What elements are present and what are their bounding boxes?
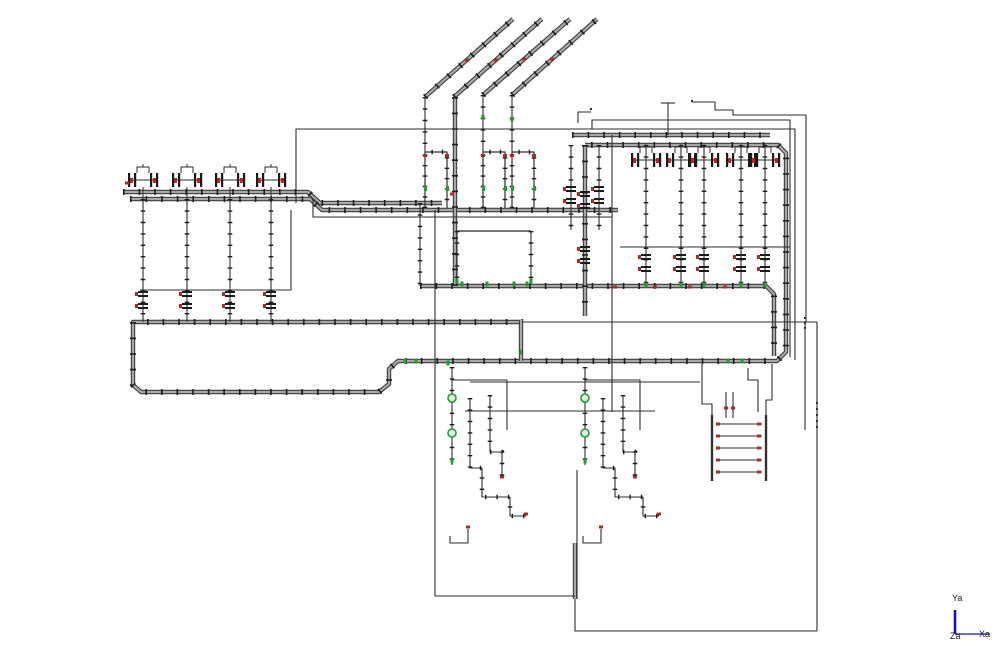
inline-valve-symbol [638,254,651,272]
flange-bar [225,291,235,293]
weld-ticks [490,395,502,478]
red-mark [522,58,526,61]
flange-bar [284,173,286,187]
flange-bar [641,254,651,256]
valve-mark-green [424,186,427,191]
flange-bar [566,198,576,200]
flange-bar [138,291,148,293]
flange-gasket-red [510,154,514,157]
flange-bar [736,270,746,272]
flange-bar [760,258,770,260]
green-mark [526,282,529,287]
flange-bar [748,153,750,167]
flange-bar [594,190,604,192]
green-mark [645,283,648,288]
line-segment [583,529,601,543]
flange-bar [676,258,686,260]
valve-green-circle [448,429,456,437]
red-mark [757,423,761,426]
flange-bar [138,295,148,297]
flange-bar [266,295,276,297]
flange-gasket-red [445,154,449,157]
flange-bar [689,153,691,167]
flange-bar [760,270,770,272]
flange-gasket-red [638,255,641,259]
green-mark [404,359,407,364]
inline-valve-symbol [179,291,192,309]
flange-gasket-red [423,154,427,157]
green-mark [727,359,730,364]
uloop-manifold-symbol [510,152,536,208]
flange-gasket-red [217,178,220,183]
flange-bar [717,153,719,167]
flange-bar [182,307,192,309]
flange-bar [266,303,276,305]
thick-pipes [123,19,786,599]
flange-bar [225,307,235,309]
flange-bar [672,153,674,167]
red-mark [524,513,528,516]
line-segment [450,529,468,543]
red-mark [500,476,504,479]
line-segment [702,364,712,415]
flange-bar [760,266,770,268]
inline-valve-symbol [733,254,746,272]
flange-gasket-red [135,304,138,308]
uloop-symbols [423,152,536,208]
flange-gasket-red [591,187,594,191]
flange-gasket-red [696,267,699,271]
flange-bar [182,303,192,305]
green-mark [520,350,523,355]
flange-bar [631,153,633,167]
flange-bar [736,258,746,260]
flange-gasket-red [281,178,284,183]
red-mark [657,513,661,516]
flange-gasket-red [263,292,266,296]
flange-gasket-red [481,154,485,157]
flange-bar [580,258,590,260]
flange-gasket-red [752,158,755,163]
flange-bar [225,295,235,297]
red-mark [494,59,498,62]
flange-bar [580,246,590,248]
flange-bar [194,173,196,187]
line-segment [296,129,795,360]
flange-bar [699,254,709,256]
uloop-pipe [512,152,534,208]
axis-label-z: Za [950,632,961,641]
uloop-pipe [425,152,447,208]
red-mark [716,435,720,438]
red-mark [653,286,657,289]
flange-gasket-red [691,158,694,163]
inline-valve-symbol [222,291,235,309]
flange-bar [178,173,180,187]
flange-gasket-red [563,199,566,203]
weld-ticks [425,152,447,208]
red-mark [599,526,603,529]
red-mark [716,447,720,450]
inline-valve-symbol [673,254,686,272]
flange-bar [262,173,264,187]
weld-ticks [470,398,526,516]
manifold-loop [137,167,149,173]
flange-bar [278,173,280,187]
line-segment [140,210,291,290]
flange-gasket-red [222,304,225,308]
flange-bar [666,153,668,167]
flange-bar [711,153,713,167]
flange-bar [726,153,728,167]
green-mark [740,283,743,288]
weld-ticks [512,152,534,208]
flange-bar [695,153,697,167]
flange-gasket-red [733,255,736,259]
dot-mark [804,322,806,324]
flange-gasket-red [174,178,177,183]
inline-valve-symbol [757,254,770,272]
line-segment [452,380,507,430]
green-mark [513,282,516,287]
flange-gasket-red [668,158,671,163]
flange-bar [128,173,130,187]
weld-ticks [603,398,659,516]
red-mark [731,407,735,410]
green-mark [530,279,533,284]
flange-bar [138,307,148,309]
axis-label-x: Xa [979,630,990,639]
green-mark [680,283,683,288]
flange-bar [566,202,576,204]
red-mark [757,435,761,438]
red-mark [465,59,469,62]
dot-mark [691,100,693,102]
green-mark [451,459,454,464]
piping-diagram [0,0,1000,653]
flange-bar [580,207,590,209]
flange-bar [659,153,661,167]
green-mark [415,359,418,364]
weld-ticks [483,152,505,208]
flange-bar [221,173,223,187]
flange-bar [750,153,752,167]
flange-bar [138,303,148,305]
inline-valve-symbol [563,186,576,204]
green-mark [456,279,459,284]
flange-bar [594,202,604,204]
flange-gasket-red [673,267,676,271]
flange-gasket-red [577,192,580,196]
flange-bar [256,173,258,187]
flange-bar [172,173,174,187]
flange-bar [134,173,136,187]
valve-green-circle [581,394,589,402]
red-mark [716,471,720,474]
flange-bar [566,186,576,188]
flange-bar [676,254,686,256]
flange-bar [676,270,686,272]
red-mark [450,193,454,196]
green-mark [764,283,767,288]
uloop-manifold-symbol [481,152,507,208]
axis-label-y: Ya [952,594,962,603]
inline-valve-symbol [591,186,604,204]
dot-mark [816,408,818,410]
flange-bar [580,262,590,264]
flange-bar [699,270,709,272]
valve-mark-green [533,186,536,191]
flange-bar [676,266,686,268]
flange-gasket-red [577,204,580,208]
red-mark [724,407,728,410]
line-segment [766,364,772,415]
green-mark [447,361,450,366]
flange-bar [266,291,276,293]
flange-bar [641,266,651,268]
red-mark [125,182,129,185]
green-valves [448,394,589,437]
flange-bar [653,153,655,167]
flange-bar [182,295,192,297]
valve-mark-green [511,186,514,191]
valve-green-circle [448,394,456,402]
flange-bar [641,258,651,260]
flange-gasket-red [503,154,507,157]
flange-gasket-red [240,178,243,183]
inline-valve-symbol [263,291,276,309]
flange-gasket-red [757,267,760,271]
dot-mark [804,327,806,329]
green-mark [741,359,744,364]
flange-gasket-red [757,255,760,259]
green-mark [584,459,587,464]
dot-mark [590,108,592,110]
weld-ticks [623,395,635,478]
flange-bar [732,153,734,167]
line-segment [603,398,659,516]
flange-bar [580,250,590,252]
uloop-manifold-symbol [423,152,449,208]
flange-bar [200,173,202,187]
flange-bar [756,153,758,167]
flange-bar [580,191,590,193]
red-mark [466,526,470,529]
flange-bar [215,173,217,187]
flange-gasket-red [563,187,566,191]
uloop-pipe [483,152,505,208]
flange-gasket-red [577,247,580,251]
flange-bar [736,266,746,268]
valve-mark-green [504,186,507,191]
line-segment [575,599,817,631]
flange-bar [150,173,152,187]
flange-bar [594,198,604,200]
manifold-loop [224,167,236,173]
flange-gasket-red [638,267,641,271]
flange-bar [266,307,276,309]
flange-gasket-red [696,255,699,259]
flange-gasket-red [179,292,182,296]
dot-mark [816,420,818,422]
flange-gasket-red [197,178,200,183]
flange-gasket-red [179,304,182,308]
flange-bar [225,303,235,305]
flange-bar [580,195,590,197]
green-mark [461,282,464,287]
green-mark [486,282,489,287]
dot-mark [816,426,818,428]
red-mark [613,286,617,289]
red-mark [716,423,720,426]
inline-valve-symbol [135,291,148,309]
flange-bar [580,203,590,205]
flange-bar [641,270,651,272]
flange-bar [699,266,709,268]
flange-gasket-red [532,154,536,157]
flange-gasket-red [577,259,580,263]
flange-gasket-red [263,304,266,308]
manifold-loop [265,167,277,173]
flange-gasket-red [258,178,261,183]
dot-mark [804,317,806,319]
red-mark [757,459,761,462]
flange-gasket-red [591,199,594,203]
flange-gasket-red [656,158,659,163]
flange-bar [736,254,746,256]
line-segment [748,368,758,412]
flange-bar [772,153,774,167]
red-mark [550,58,554,61]
valve-mark-green [482,186,485,191]
red-mark [757,471,761,474]
flange-gasket-red [673,255,676,259]
cad-viewport: Ya Za Xa [0,0,1000,653]
flange-gasket-red [728,158,731,163]
dot-mark [816,414,818,416]
flange-gasket-red [733,267,736,271]
green-mark [482,115,485,120]
red-mark [716,459,720,462]
flange-bar [699,258,709,260]
dot-mark [816,402,818,404]
green-mark [703,283,706,288]
red-mark [633,476,637,479]
red-mark [723,286,727,289]
flange-bar [760,254,770,256]
flange-gasket-red [714,158,717,163]
flange-bar [237,173,239,187]
green-mark [511,117,514,122]
flange-bar [637,153,639,167]
red-mark [757,447,761,450]
flange-bar [594,186,604,188]
flange-gasket-red [130,178,133,183]
flange-gasket-red [633,158,636,163]
flange-bar [778,153,780,167]
flange-bar [156,173,158,187]
flange-gasket-red [775,158,778,163]
flange-gasket-red [135,292,138,296]
inline-valve-symbol [696,254,709,272]
valve-green-circle [581,429,589,437]
manifold-loop [181,167,193,173]
line-segment [470,398,526,516]
valve-mark-green [446,186,449,191]
flange-bar [566,190,576,192]
flange-gasket-red [153,178,156,183]
flange-bar [243,173,245,187]
line-segment [578,112,591,123]
red-mark [688,286,692,289]
flange-bar [182,291,192,293]
flange-gasket-red [222,292,225,296]
